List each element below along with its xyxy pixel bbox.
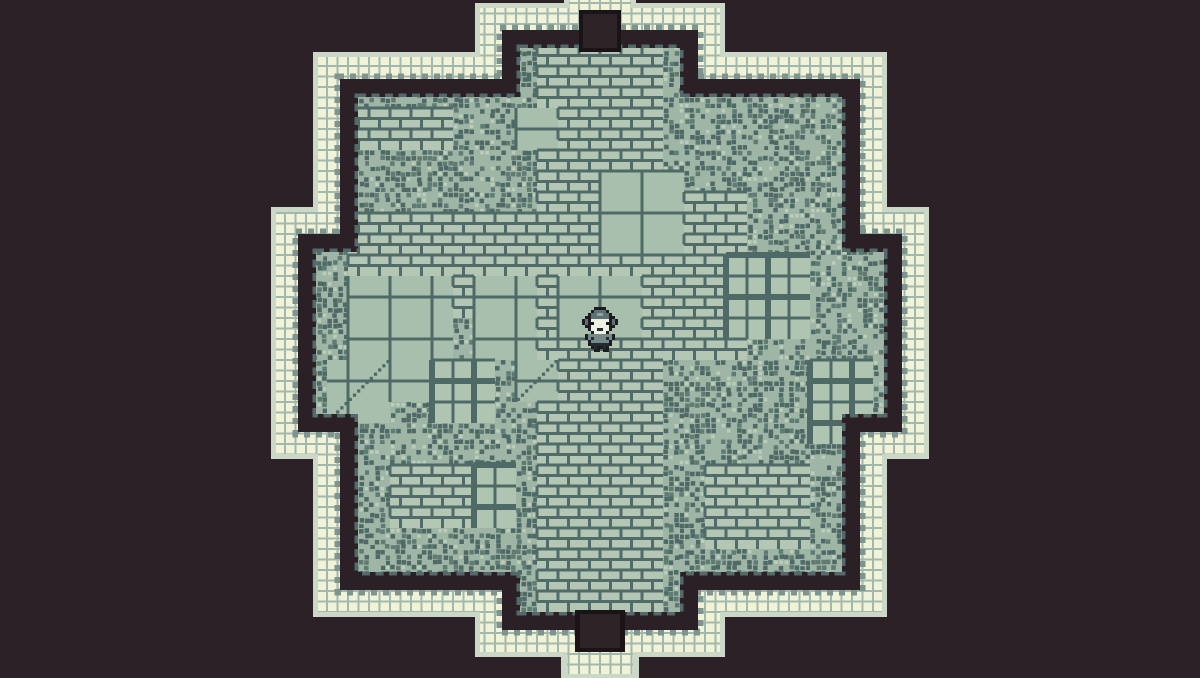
- game-screen: [0, 0, 1200, 678]
- dungeon-room-canvas[interactable]: [0, 0, 1200, 678]
